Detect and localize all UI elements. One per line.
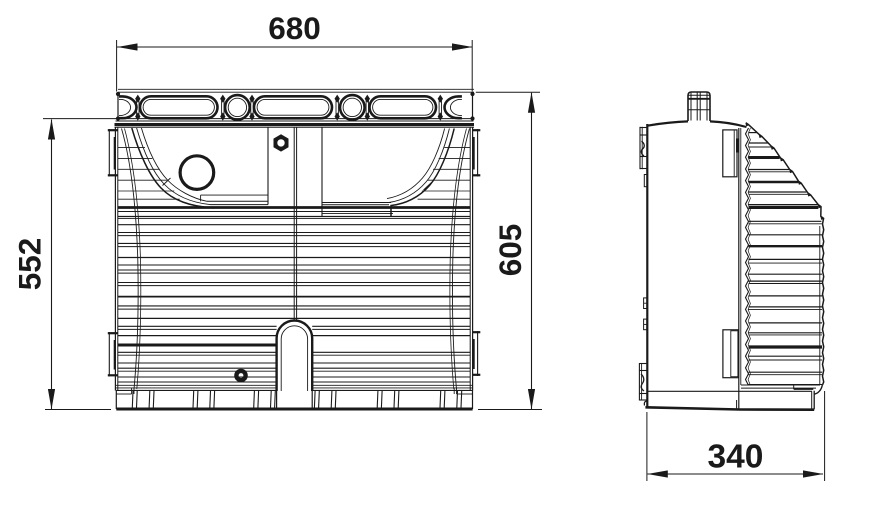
svg-text:552: 552 [12, 238, 48, 291]
svg-text:340: 340 [708, 439, 764, 476]
svg-text:605: 605 [492, 224, 528, 277]
svg-text:680: 680 [268, 10, 321, 46]
